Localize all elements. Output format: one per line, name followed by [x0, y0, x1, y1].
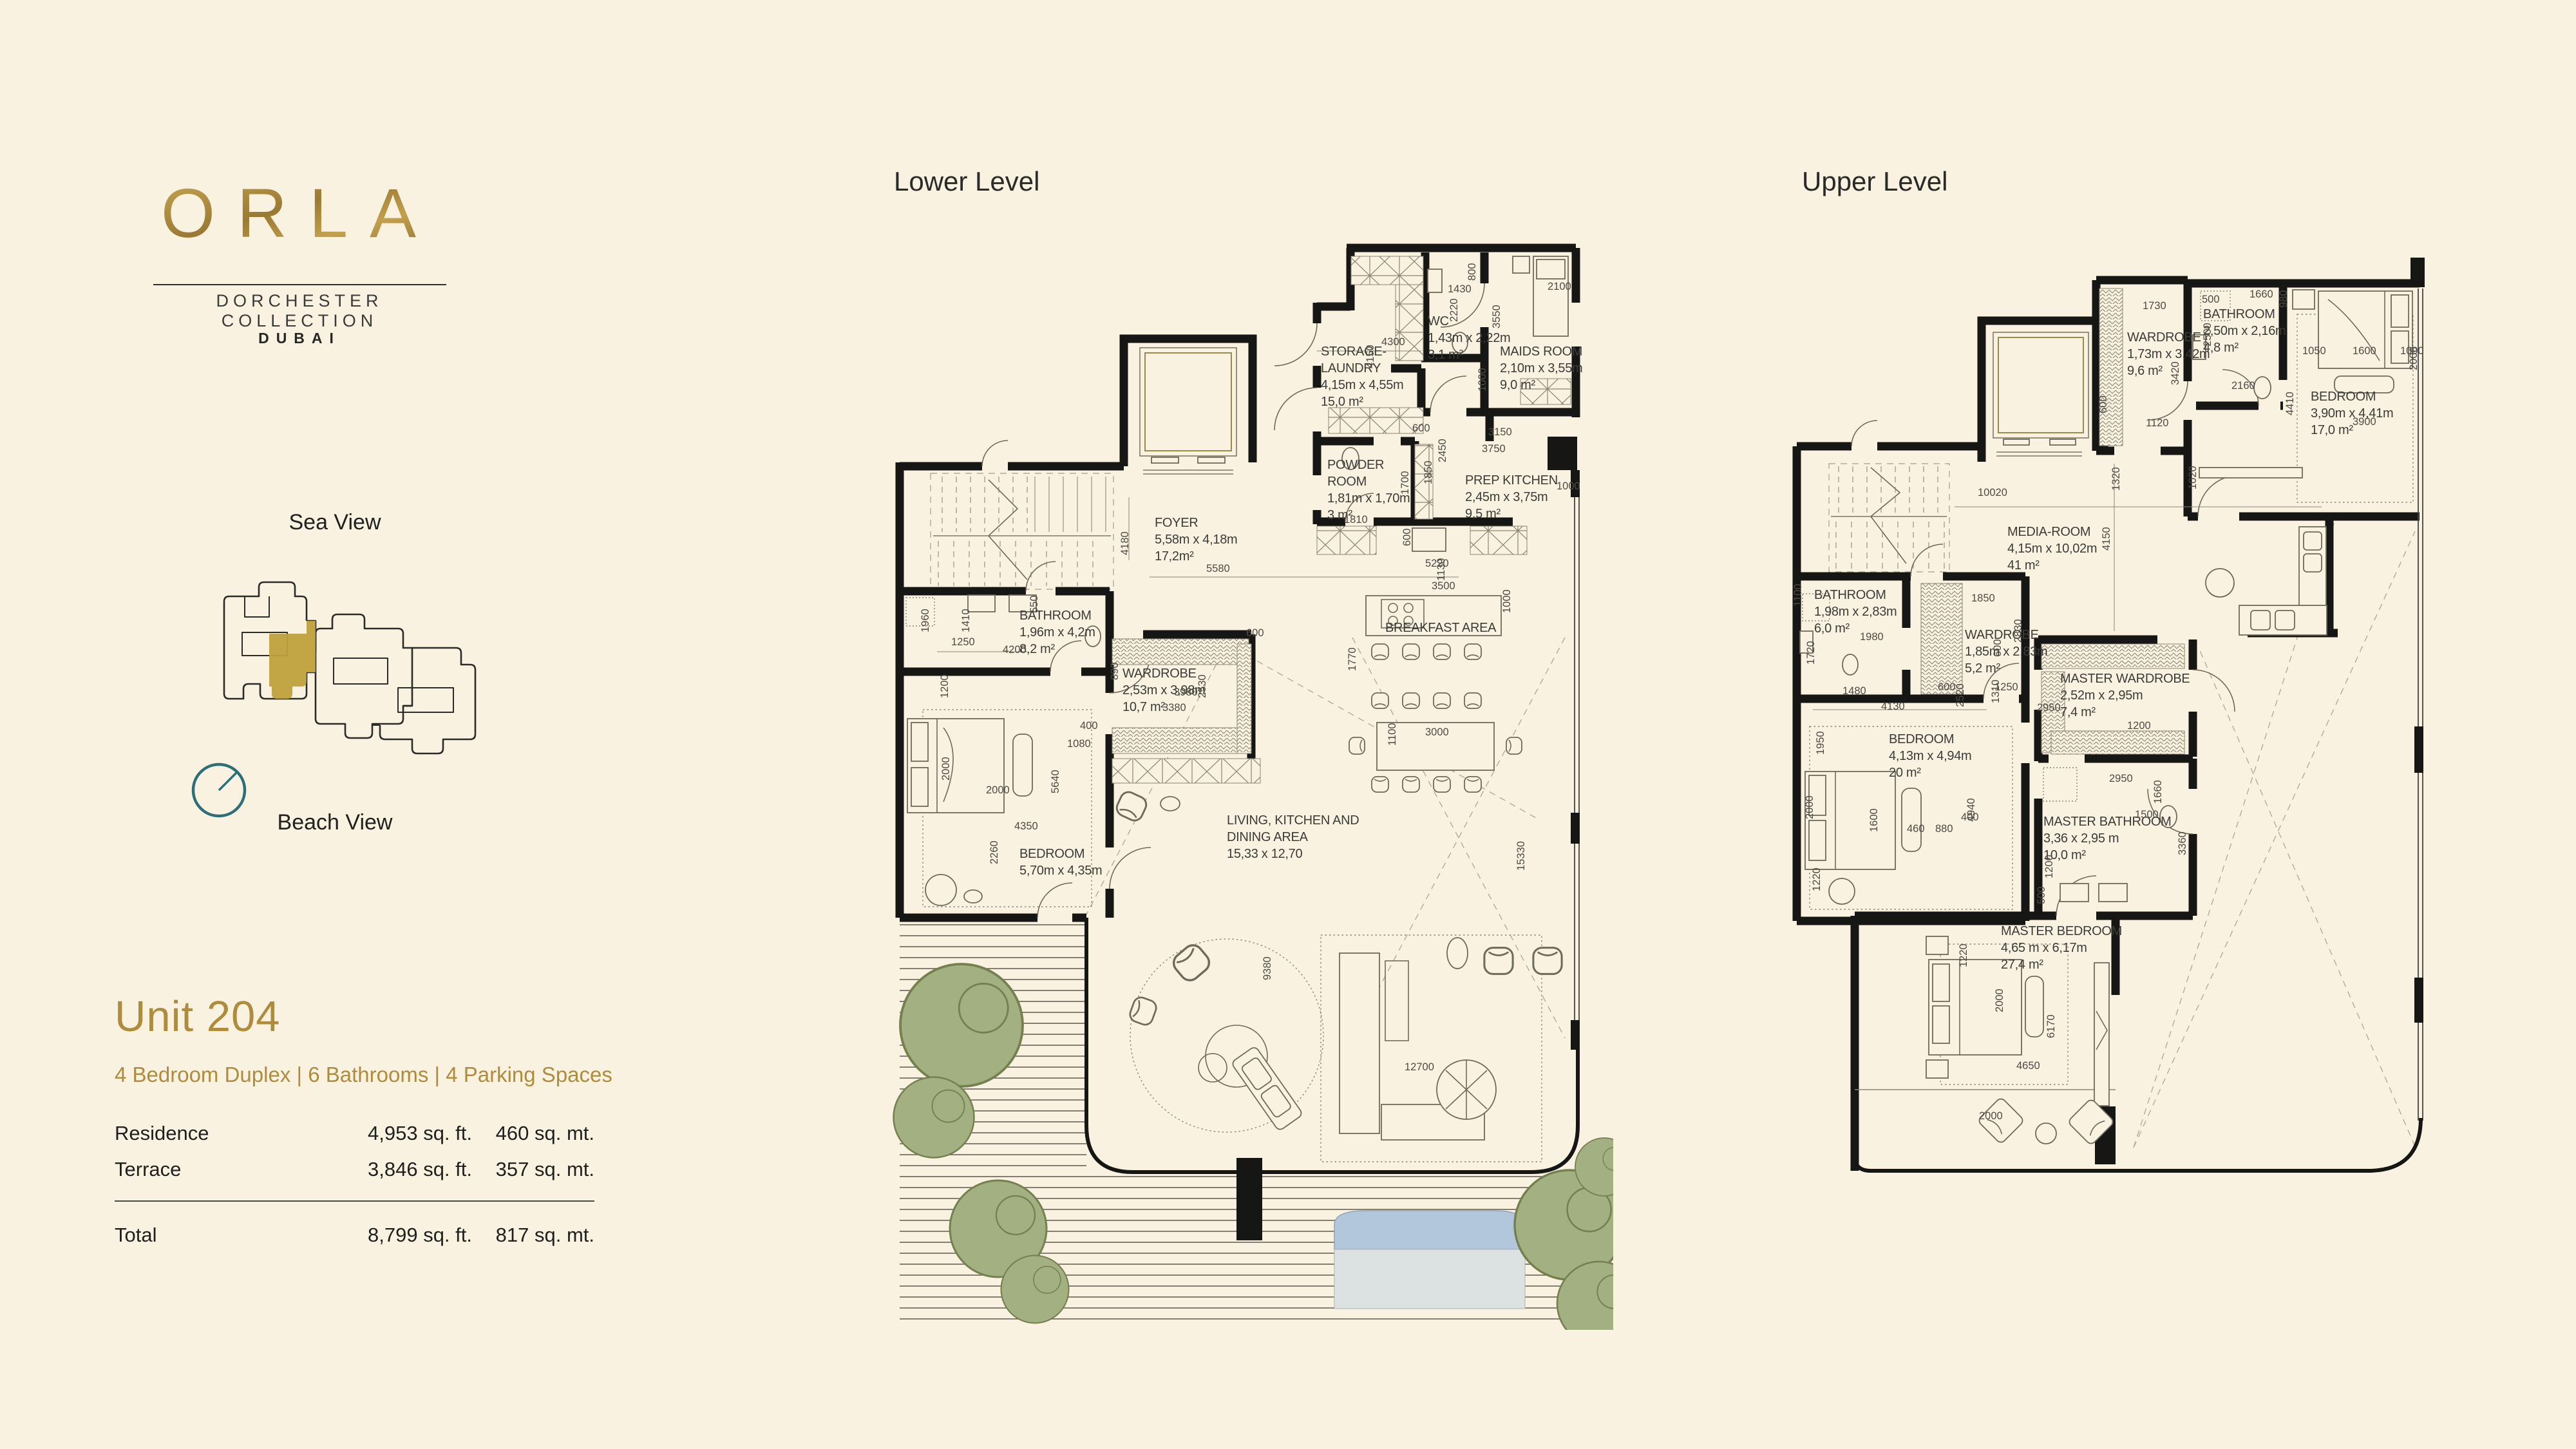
- beach-view-label: Beach View: [229, 810, 441, 835]
- upper-room-9-line-1: 4,65 m x 6,17m: [2001, 941, 2087, 955]
- upper-dim-42: 1660: [2152, 780, 2164, 804]
- lower-dim-17: 600: [1401, 528, 1413, 546]
- upper-dim-14: 4410: [2284, 392, 2296, 415]
- lower-dim-21: 1770: [1347, 647, 1358, 671]
- upper-room-1-line-1: 2,50m x 2,16m: [2203, 324, 2286, 338]
- upper-room-2-line-2: 17,0 m²: [2311, 423, 2353, 437]
- upper-dim-7: 980: [2278, 290, 2289, 308]
- lower-room-1-line-2: 3,1 m²: [1428, 348, 1464, 362]
- lower-room-8-line-0: BEDROOM: [1019, 847, 1084, 861]
- upper-dim-10: 1050: [2302, 345, 2326, 357]
- lower-room-1-line-1: 1,43m x 2,22m: [1428, 331, 1510, 345]
- upper-dim-8: 2500: [2202, 323, 2213, 346]
- lower-room-9-line-2: 15,33 x 12,70: [1227, 847, 1302, 861]
- upper-dim-17: 10020: [1978, 487, 2007, 498]
- lower-dim-33: 2000: [986, 784, 1010, 796]
- elevator: [1124, 339, 1253, 474]
- lower-dim-8: 600: [1412, 422, 1430, 434]
- pool: [1334, 1211, 1525, 1309]
- upper-room-3-line-1: 4,15m x 10,02m: [2007, 542, 2097, 556]
- area-row-1-sqft: 3,846 sq. ft.: [276, 1158, 472, 1181]
- lower-dim-29: 1960: [920, 609, 931, 632]
- area-row-1: Terrace3,846 sq. ft.357 sq. mt.: [115, 1158, 594, 1181]
- upper-dim-26: 1480: [1842, 685, 1866, 697]
- lower-room-4-line-0: PREP KITCHEN: [1465, 473, 1558, 488]
- area-table-divider: [115, 1200, 594, 1202]
- lower-dim-24: 5580: [1206, 563, 1230, 574]
- lower-dim-1: 4150: [1365, 345, 1376, 368]
- upper-room-0-line-2: 9,6 m²: [2127, 364, 2163, 378]
- lower-dim-12: 1850: [1423, 460, 1434, 484]
- upper-room-9-line-0: MASTER BEDROOM: [2001, 924, 2122, 938]
- lower-dim-46: 9380: [1262, 956, 1273, 980]
- brand-divider: [153, 284, 446, 285]
- upper-dim-32: 880: [1935, 823, 1953, 835]
- upper-dim-43: 1500: [2135, 809, 2159, 820]
- site-plan: [205, 562, 488, 768]
- upper-dim-16: 1320: [2110, 467, 2122, 491]
- lower-dim-44: 15330: [1515, 841, 1527, 871]
- elevator-upper: [1982, 321, 2104, 462]
- upper-dim-27: 4130: [1881, 701, 1905, 712]
- upper-dim-23: 1100: [1792, 584, 1804, 607]
- lower-dim-15: 1000: [1557, 480, 1580, 492]
- upper-level-title: Upper Level: [1802, 166, 1947, 197]
- upper-dim-46: 500: [2036, 886, 2047, 904]
- upper-dim-37: 1310: [1990, 679, 2002, 703]
- upper-dim-35: 1220: [1811, 867, 1823, 891]
- lower-room-3-line-1: ROOM: [1327, 475, 1367, 489]
- lower-dim-28: 550: [1028, 595, 1040, 613]
- area-row-0-label: Residence: [115, 1122, 276, 1145]
- upper-dim-45: 1200: [2043, 855, 2055, 878]
- lower-room-8-line-1: 5,70m x 4,35m: [1019, 864, 1102, 878]
- upper-dim-41: 2950: [2109, 773, 2133, 784]
- brochure-page: { "branding": { "logo": "ORLA", "collect…: [0, 0, 2576, 1449]
- upper-dim-51: 2000: [1979, 1110, 2003, 1122]
- lower-level-plan: STORAGE-LAUNDRY4,15m x 4,55m15,0 m²WC1,4…: [866, 219, 1613, 1330]
- lower-room-0-line-3: 15,0 m²: [1321, 395, 1363, 409]
- upper-room-5-line-2: 5,2 m²: [1965, 661, 2001, 676]
- upper-dim-1: 600: [2098, 395, 2109, 413]
- area-row-total: Total8,799 sq. ft.817 sq. mt.: [115, 1224, 594, 1247]
- unit-subtitle: 4 Bedroom Duplex | 6 Bathrooms | 4 Parki…: [115, 1063, 612, 1087]
- upper-room-5-line-1: 1,85m x 2,83m: [1965, 645, 2047, 659]
- brand-collection: DORCHESTER COLLECTION: [135, 291, 464, 331]
- lower-dim-35: 400: [1080, 720, 1098, 732]
- upper-dim-49: 2000: [1994, 989, 2005, 1012]
- lower-room-6-line-1: 1,96m x 4,2m: [1019, 625, 1095, 639]
- upper-dim-48: 6170: [2045, 1014, 2057, 1038]
- lower-dim-6: 3550: [1491, 305, 1502, 328]
- lower-dim-42: 3380: [1162, 702, 1186, 714]
- lower-dim-3: 800: [1466, 263, 1478, 281]
- upper-dim-2: 1120: [2146, 417, 2168, 429]
- upper-dim-50: 1220: [1958, 943, 1969, 967]
- lower-dim-13: 1700: [1399, 471, 1411, 495]
- upper-room-3-line-0: MEDIA-ROOM: [2007, 525, 2090, 539]
- lower-dim-14: 1810: [1344, 514, 1368, 526]
- lower-dim-25: 4180: [1119, 531, 1131, 555]
- upper-room-9-line-2: 27,4 m²: [2001, 958, 2043, 972]
- upper-room-4-line-2: 6,0 m²: [1814, 621, 1850, 636]
- lower-dim-38: 4350: [1014, 820, 1038, 832]
- upper-room-7-line-1: 4,13m x 4,94m: [1889, 749, 1971, 763]
- lower-room-2-line-2: 9,0 m²: [1500, 378, 1536, 392]
- lower-room-5-line-1: 5,58m x 4,18m: [1155, 533, 1237, 547]
- lower-room-1-line-0: WC: [1428, 314, 1449, 328]
- lower-dim-26: 1250: [951, 636, 975, 648]
- upper-dim-19: 1850: [1971, 592, 1995, 604]
- upper-dim-0: 1730: [2143, 300, 2166, 312]
- lower-dim-5: 2100: [1548, 281, 1571, 292]
- upper-room-0-line-1: 1,73m x 3,42m: [2127, 347, 2210, 361]
- lower-dim-27: 4200: [1003, 644, 1027, 656]
- area-row-1-label: Terrace: [115, 1158, 276, 1181]
- area-row-0-sqmt: 460 sq. mt.: [472, 1122, 594, 1145]
- upper-room-3-line-2: 41 m²: [2007, 558, 2040, 573]
- upper-dim-22: 600: [1938, 681, 1956, 693]
- lower-dim-34: 890: [1109, 662, 1121, 680]
- lower-room-0-line-0: STORAGE-: [1321, 345, 1387, 359]
- upper-room-1-line-0: BATHROOM: [2203, 307, 2275, 321]
- upper-room-8-line-1: 3,36 x 2,95 m: [2043, 831, 2119, 846]
- lower-room-4-line-1: 2,45m x 3,75m: [1465, 490, 1548, 504]
- upper-dim-30: 1600: [1868, 808, 1880, 832]
- orla-logo-text: ORLA: [161, 174, 438, 252]
- lower-dim-23: 1100: [1387, 723, 1398, 746]
- upper-dim-36: 2520: [1955, 683, 1966, 707]
- orla-logo: ORLA: [135, 155, 464, 277]
- lower-dim-31: 1200: [939, 674, 951, 698]
- lower-dim-40: 2530: [1197, 674, 1208, 698]
- upper-dim-15: 3900: [2353, 416, 2376, 428]
- stairs-upper: [1829, 464, 1949, 572]
- lower-room-0-line-2: 4,15m x 4,55m: [1321, 378, 1403, 392]
- upper-room-4-line-1: 1,98m x 2,83m: [1814, 605, 1897, 619]
- upper-level-plan: WARDROBE1,73m x 3,42m9,6 m²BATHROOM2,50m…: [1774, 219, 2431, 1330]
- lower-room-3-line-2: 1,81m x 1,70m: [1327, 491, 1410, 506]
- lower-dim-20: 1000: [1501, 589, 1513, 613]
- lower-dim-32: 2000: [940, 757, 952, 781]
- lower-dim-2: 1430: [1448, 283, 1472, 295]
- lower-dim-11: 2450: [1437, 439, 1448, 462]
- upper-dim-47: 4650: [2016, 1060, 2040, 1072]
- stairs: [931, 473, 1113, 589]
- upper-dim-5: 500: [2202, 294, 2220, 305]
- area-row-1-sqmt: 357 sq. mt.: [472, 1158, 594, 1181]
- upper-room-7-line-2: 20 m²: [1889, 766, 1921, 780]
- upper-room-6-line-1: 2,52m x 2,95m: [2060, 688, 2143, 703]
- upper-dim-13: 2000: [2408, 346, 2420, 370]
- upper-dim-25: 1720: [1805, 641, 1817, 665]
- lower-room-7-line-2: 10,7 m²: [1122, 700, 1165, 714]
- lower-room-9-line-0: LIVING, KITCHEN AND: [1227, 813, 1359, 828]
- terrace-wall-stub: [1236, 1158, 1262, 1240]
- area-table: Residence4,953 sq. ft.460 sq. mt.Terrace…: [115, 1122, 594, 1260]
- upper-room-7-line-0: BEDROOM: [1889, 732, 1954, 746]
- upper-dim-29: 2000: [1804, 795, 1815, 819]
- upper-dim-4: 1020: [2187, 466, 2199, 489]
- lower-level-title: Lower Level: [894, 166, 1039, 197]
- upper-room-0-line-0: WARDROBE: [2127, 330, 2201, 345]
- lower-dim-43: 600: [1246, 627, 1264, 639]
- upper-dim-11: 1600: [2353, 345, 2376, 357]
- upper-dim-18: 4150: [2101, 527, 2112, 551]
- lower-room-7-line-0: WARDROBE: [1122, 667, 1197, 681]
- upper-dim-40: 1200: [2127, 720, 2151, 732]
- lower-dim-36: 1080: [1067, 738, 1091, 750]
- lower-room-10-line-0: BREAKFAST AREA: [1385, 621, 1497, 635]
- upper-dim-9: 2160: [2231, 380, 2255, 392]
- upper-room-2-line-0: BEDROOM: [2311, 390, 2376, 404]
- lower-room-9-line-1: DINING AREA: [1227, 830, 1309, 844]
- lower-dim-9: 3150: [1488, 426, 1512, 438]
- lower-dim-22: 3000: [1425, 726, 1449, 738]
- upper-dim-6: 1660: [2249, 289, 2273, 300]
- upper-dim-34: 4940: [1965, 798, 1977, 822]
- upper-dim-39: 2950: [2037, 702, 2061, 714]
- area-row-total-label: Total: [115, 1224, 276, 1247]
- upper-dim-38: 600: [1992, 639, 2003, 657]
- upper-room-6-line-2: 7,4 m²: [2060, 705, 2096, 719]
- upper-dim-31: 460: [1907, 823, 1925, 835]
- lower-dim-10: 3750: [1482, 443, 1506, 455]
- unit-title: Unit 204: [115, 992, 281, 1041]
- lower-dim-30: 1410: [960, 609, 972, 632]
- upper-room-4-line-0: BATHROOM: [1814, 588, 1886, 602]
- compass-needle: [219, 772, 238, 790]
- upper-dim-24: 1980: [1860, 631, 1884, 643]
- sea-view-label: Sea View: [241, 510, 428, 535]
- lower-dim-39: 2260: [989, 840, 1000, 864]
- lower-room-2-line-1: 2,10m x 3,55m: [1500, 361, 1582, 375]
- lower-dim-37: 5640: [1050, 770, 1061, 793]
- upper-room-6-line-0: MASTER WARDROBE: [2060, 672, 2190, 686]
- lower-dim-4: 2220: [1448, 298, 1460, 322]
- area-row-0: Residence4,953 sq. ft.460 sq. mt.: [115, 1122, 594, 1145]
- lower-dim-45: 12700: [1405, 1061, 1434, 1073]
- upper-dim-44: 3360: [2177, 831, 2188, 855]
- lower-dim-41: 3980: [1174, 687, 1198, 698]
- lower-room-2-line-0: MAIDS ROOM: [1500, 345, 1582, 359]
- area-row-total-sqmt: 817 sq. mt.: [472, 1224, 594, 1247]
- area-row-0-sqft: 4,953 sq. ft.: [276, 1122, 472, 1145]
- area-row-total-sqft: 8,799 sq. ft.: [276, 1224, 472, 1247]
- lower-room-5-line-2: 17,2m²: [1155, 549, 1194, 563]
- lower-dim-18: 1130: [1435, 558, 1447, 581]
- lower-room-4-line-2: 9,5 m²: [1465, 507, 1501, 521]
- upper-dim-28: 1950: [1815, 731, 1826, 755]
- lower-dim-19: 3500: [1432, 580, 1455, 592]
- lower-dim-0: 4300: [1381, 336, 1405, 348]
- upper-dim-3: 3420: [2170, 361, 2181, 385]
- lower-room-3-line-0: POWDER: [1327, 458, 1384, 472]
- lower-dim-7: 1000: [1477, 368, 1488, 392]
- brand-city: DUBAI: [135, 330, 464, 347]
- upper-dim-20: 2830: [2012, 619, 2024, 643]
- lower-room-5-line-0: FOYER: [1155, 516, 1198, 530]
